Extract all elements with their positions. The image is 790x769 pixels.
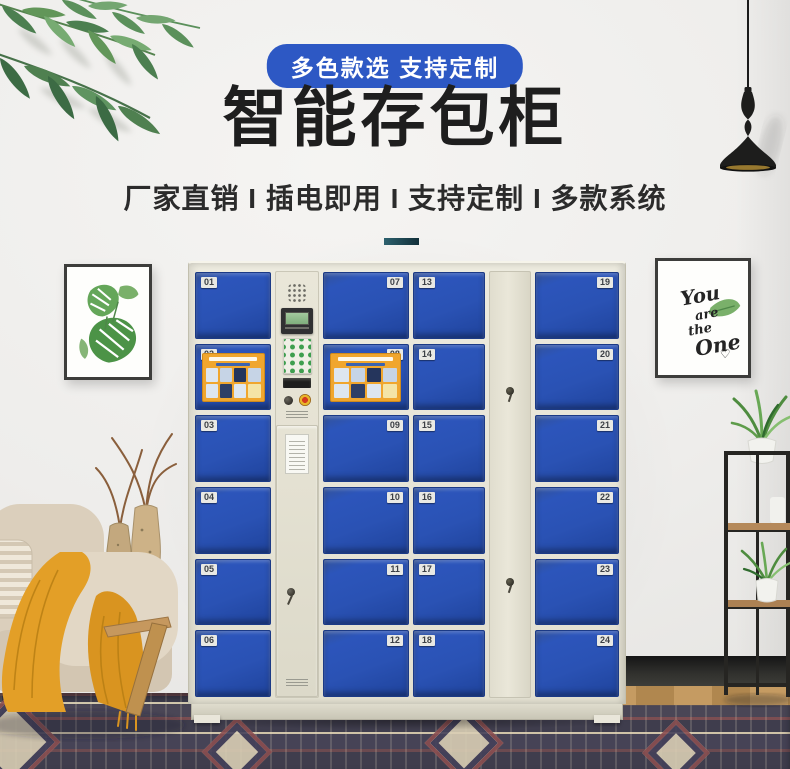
keypad [283, 338, 312, 374]
locker-column-3: 131415161718 [413, 271, 486, 698]
poster-step-image [248, 384, 260, 398]
teal-divider [384, 238, 419, 245]
locker-door-09: 09 [323, 415, 409, 482]
door-number: 12 [387, 635, 403, 646]
heart-glyph: ♡ [720, 347, 731, 361]
poster-step-image [383, 384, 397, 398]
page-subtitle: 厂家直销 I 插电即用 I 支持定制 I 多款系统 [0, 177, 790, 217]
locker-column-4: 192021222324 [535, 271, 619, 698]
locker-door-24: 24 [535, 630, 619, 697]
poster-step-image [334, 368, 348, 382]
door-number: 22 [597, 492, 613, 503]
plant-pot [748, 438, 776, 464]
lamp-cord [747, 0, 749, 92]
locker-door-11: 11 [323, 559, 409, 626]
locker-door-02: 02 [195, 344, 271, 411]
panel-lock-icon [506, 578, 514, 586]
door-number: 19 [597, 277, 613, 288]
wall-art-monstera [64, 264, 152, 380]
poster-step-image [234, 384, 246, 398]
panel-lock-icon [506, 387, 514, 395]
locker-door-08: 08 [323, 344, 409, 411]
poster-step-image [367, 368, 381, 382]
locker-door-10: 10 [323, 487, 409, 554]
locker-door-17: 17 [413, 559, 486, 626]
locker-door-22: 22 [535, 487, 619, 554]
locker-door-21: 21 [535, 415, 619, 482]
door-number: 16 [419, 492, 435, 503]
potted-plant [732, 391, 790, 443]
side-panel [489, 271, 530, 698]
monstera-illustration [72, 272, 144, 372]
door-number: 15 [419, 420, 435, 431]
locker-column-2: 070809101112 [323, 271, 409, 698]
shelf-illustration [720, 385, 790, 715]
service-door-label [286, 678, 308, 686]
rug-motif [642, 719, 710, 769]
poster-step-image [220, 384, 232, 398]
promo-banner: 多色款选 支持定制 智能存包柜 厂家直销 I 插电即用 I 支持定制 I 多款系… [0, 0, 790, 769]
locker-door-12: 12 [323, 630, 409, 697]
poster-step-image [334, 384, 348, 398]
lcd-display [285, 312, 309, 325]
door-number: 13 [419, 277, 435, 288]
locker-door-13: 13 [413, 272, 486, 339]
shelf-scene [720, 385, 790, 715]
door-number: 24 [597, 635, 613, 646]
leaves-illustration [0, 0, 240, 145]
door-number: 20 [597, 349, 613, 360]
door-number: 17 [419, 564, 435, 575]
shelf-board [728, 523, 790, 530]
locker-plinth [191, 704, 623, 720]
poster-step-image [234, 368, 246, 382]
poster-step-image [367, 384, 381, 398]
door-number: 10 [387, 492, 403, 503]
control-service-door [276, 425, 317, 697]
panel-label [286, 410, 308, 418]
door-number: 09 [387, 420, 403, 431]
locker-door-01: 01 [195, 272, 271, 339]
locker-door-16: 16 [413, 487, 486, 554]
instruction-poster [202, 353, 265, 402]
wall-art-quote: You are the One ♡ [655, 258, 751, 378]
door-number: 14 [419, 349, 435, 360]
poster-step-image [220, 368, 232, 382]
lcd-screen [281, 308, 313, 334]
poster-step-image [383, 368, 397, 382]
ticket-slot [283, 378, 311, 388]
poster-step-image [351, 384, 365, 398]
locker-cabinet: 010203040506 070809101 [188, 261, 626, 720]
locker-body: 010203040506 070809101 [188, 261, 626, 704]
poster-step-image [206, 384, 218, 398]
instruction-poster [330, 353, 401, 402]
emergency-button-icon [299, 394, 311, 406]
locker-door-23: 23 [535, 559, 619, 626]
white-vase [770, 497, 785, 523]
hanging-leaves [0, 0, 240, 145]
locker-door-15: 15 [413, 415, 486, 482]
plant-pot [756, 579, 778, 603]
locker-door-14: 14 [413, 344, 486, 411]
locker-door-18: 18 [413, 630, 486, 697]
potted-plant [742, 543, 790, 583]
poster-step-image [248, 368, 260, 382]
door-number: 23 [597, 564, 613, 575]
door-number: 18 [419, 635, 435, 646]
quote-illustration: You are the One ♡ [662, 265, 744, 371]
instruction-sheet [285, 434, 309, 474]
armchair-illustration [0, 420, 235, 769]
key-lock-icon [284, 396, 293, 405]
lock-row [284, 394, 311, 406]
locker-door-07: 07 [323, 272, 409, 339]
door-number: 01 [201, 277, 217, 288]
locker-door-20: 20 [535, 344, 619, 411]
speaker-grille-icon [286, 282, 308, 304]
control-panel [275, 271, 318, 698]
locker-door-19: 19 [535, 272, 619, 339]
door-number: 21 [597, 420, 613, 431]
poster-step-image [351, 368, 365, 382]
armchair-scene [0, 420, 235, 769]
door-number: 11 [387, 564, 403, 575]
lamp-illustration [700, 0, 790, 185]
pendant-lamp [700, 0, 790, 185]
poster-step-image [206, 368, 218, 382]
shelf-board [728, 600, 790, 607]
door-number: 07 [387, 277, 403, 288]
hanging-key-icon [287, 588, 295, 596]
